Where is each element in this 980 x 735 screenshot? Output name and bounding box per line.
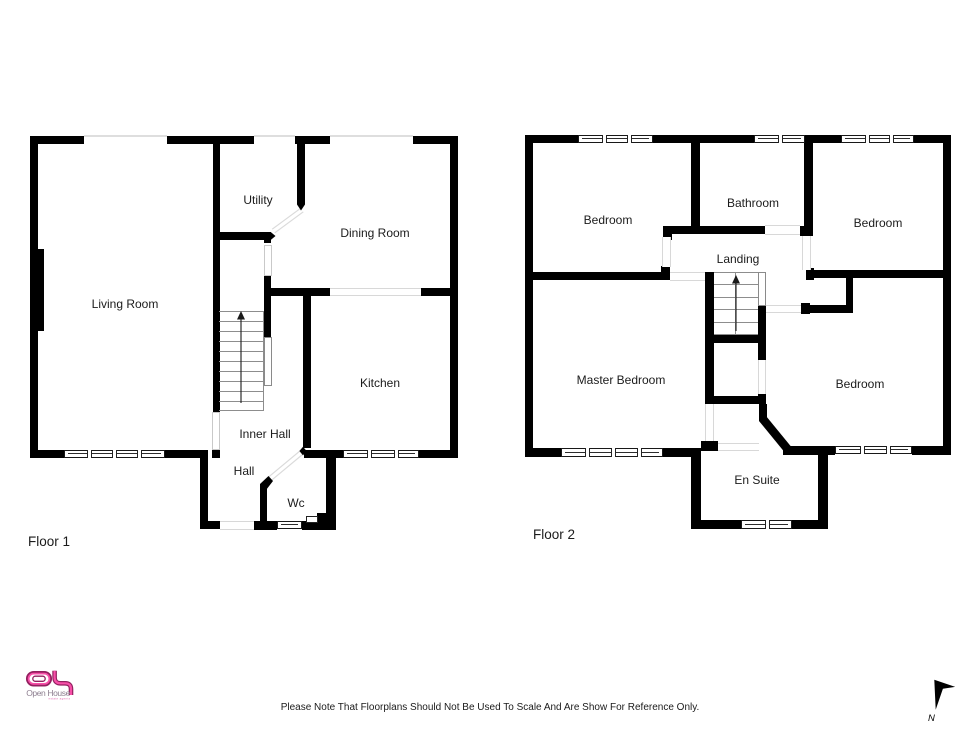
svg-text:N: N <box>928 713 935 724</box>
svg-text:estate agents: estate agents <box>49 696 71 700</box>
